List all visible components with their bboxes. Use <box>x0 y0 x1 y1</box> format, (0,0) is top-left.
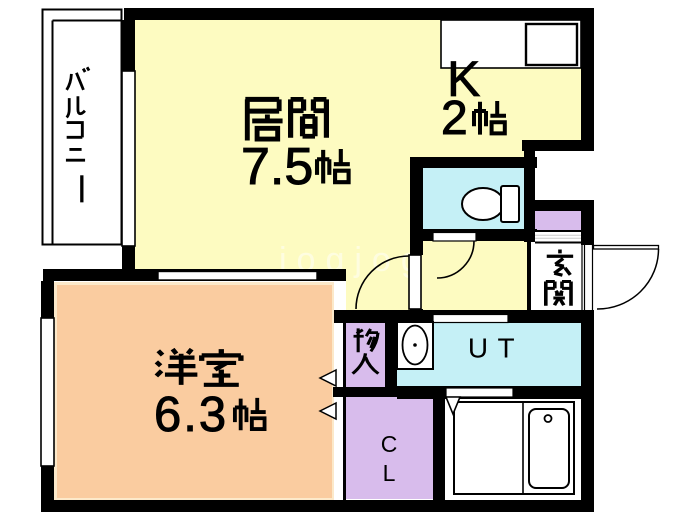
svg-text:C: C <box>381 431 398 457</box>
svg-text:U: U <box>468 333 488 364</box>
svg-text:2: 2 <box>441 92 468 145</box>
svg-text:T: T <box>497 333 514 364</box>
svg-text:6.3: 6.3 <box>154 388 228 442</box>
svg-text:7.5: 7.5 <box>241 138 313 196</box>
svg-text:L: L <box>383 460 396 486</box>
